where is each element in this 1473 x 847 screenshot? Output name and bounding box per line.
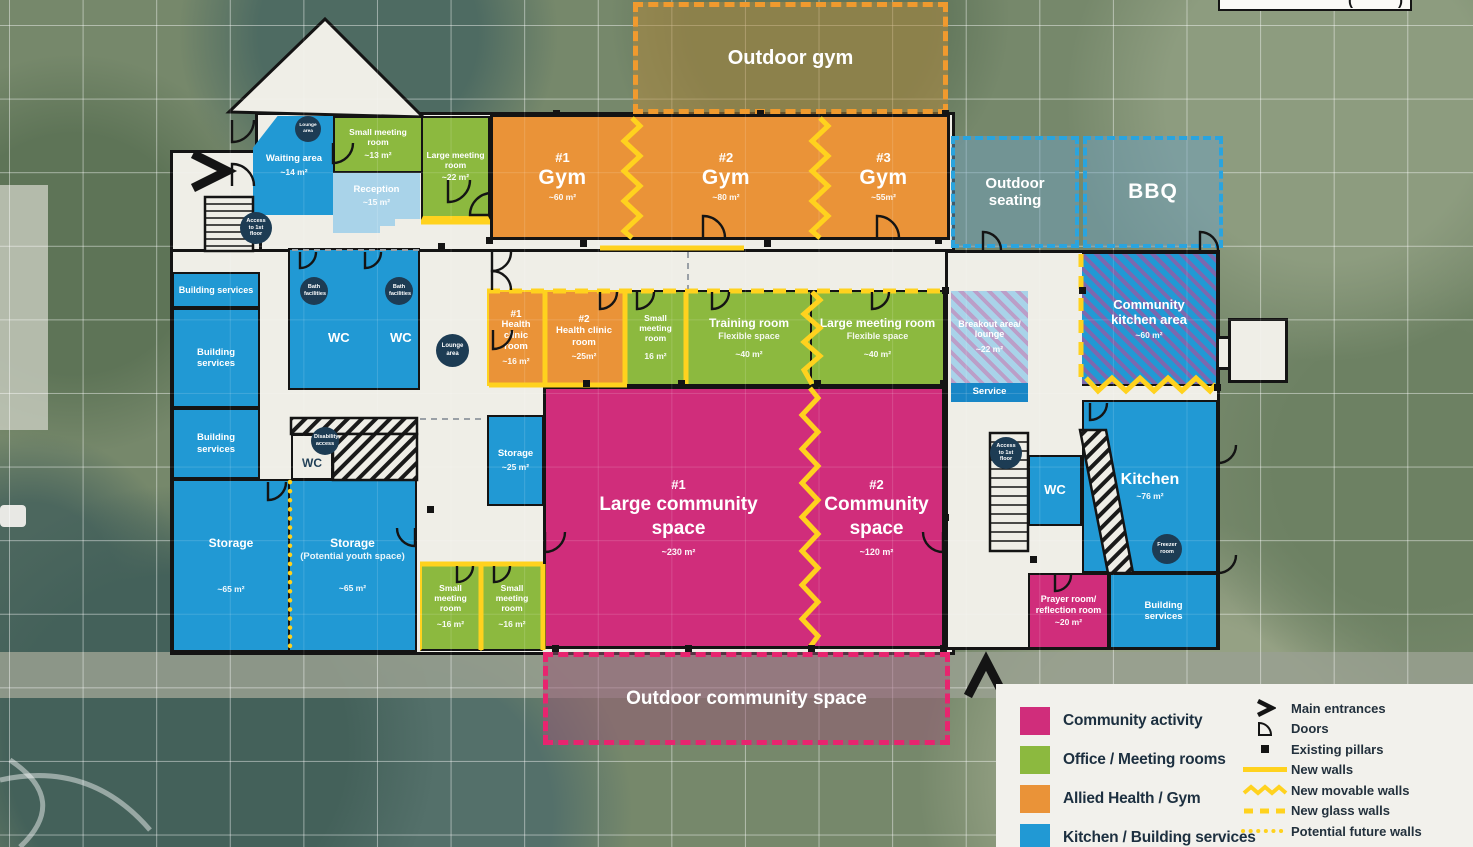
movable-wall-icon: [1239, 783, 1291, 797]
label: Storage: [209, 537, 254, 551]
label: Small meeting room: [343, 128, 413, 148]
label: WC: [1044, 483, 1066, 498]
label: Outdoor gym: [728, 47, 854, 70]
label: Service: [973, 387, 1007, 398]
label: Bath facilities: [304, 284, 324, 298]
room-large-meeting-mid: Large meeting room Flexible space ~40 m²: [812, 290, 945, 386]
area: ~230 m²: [662, 547, 696, 557]
scale-box: ( ): [1218, 0, 1412, 11]
legend-doors: Doors: [1239, 719, 1422, 740]
room-building-services-3: Building services: [172, 408, 260, 479]
room-small-meeting-top: Small meeting room ~13 m²: [333, 116, 423, 173]
badge-disability-access: Disability access: [311, 427, 339, 455]
number: #3: [876, 151, 890, 166]
legend-existing-pillars: Existing pillars: [1239, 739, 1422, 760]
room-wc-right: WC: [1028, 455, 1082, 526]
legend-item-kitchen-services: Kitchen / Building services: [1020, 823, 1256, 847]
room-gym-3: #3 Gym ~55m²: [820, 114, 950, 240]
room-wc-left-2-label: WC: [390, 330, 412, 345]
office-meeting-swatch: [1020, 746, 1050, 774]
area: ~16 m²: [498, 620, 525, 630]
room-large-meeting-top: Large meeting room ~22 m²: [421, 116, 490, 220]
outdoor-gym-zone: Outdoor gym: [633, 2, 948, 114]
gable-roof: [218, 8, 433, 120]
room-wc-block: [288, 248, 420, 390]
label: Small meeting room: [425, 584, 477, 613]
room-reception: Reception ~15 m²: [333, 173, 420, 219]
label: Lounge area: [442, 343, 464, 358]
area: ~20 m²: [1055, 618, 1082, 628]
community-activity-swatch: [1020, 707, 1050, 735]
building-annex-box: [1228, 318, 1288, 383]
label: Health clinic room: [495, 320, 537, 353]
area: ~80 m²: [712, 193, 739, 203]
label: Community kitchen area: [1094, 298, 1204, 328]
area: ~65 m²: [217, 585, 244, 595]
room-service: Service: [951, 383, 1028, 402]
number: #2: [719, 151, 733, 166]
paren-right: ): [1398, 0, 1403, 9]
area: 16 m²: [644, 352, 666, 362]
label: Building services: [179, 285, 254, 295]
label: Breakout area/ lounge: [957, 319, 1023, 340]
area: ~16 m²: [437, 620, 464, 630]
main-entrance-icon: [1239, 699, 1291, 717]
label: BBQ: [1128, 180, 1178, 204]
reception-step-2: [333, 226, 380, 233]
label: Gym: [702, 166, 750, 190]
room-wc-left-1-label: WC: [328, 330, 350, 345]
label: Small meeting room: [486, 584, 538, 613]
legend-main-entrances: Main entrances: [1239, 698, 1422, 719]
reception-step-1: [333, 219, 395, 226]
pillar-icon: [1239, 745, 1291, 753]
label: Access to 1st floor: [994, 443, 1018, 464]
label: Office / Meeting rooms: [1063, 751, 1226, 769]
outdoor-community-zone: Outdoor community space: [543, 652, 950, 745]
allied-health-swatch: [1020, 785, 1050, 813]
note: Flexible space: [847, 331, 909, 341]
room-building-services-2: Building services: [172, 308, 260, 408]
room-storage-25: Storage ~25 m²: [487, 415, 544, 506]
label: Small meeting room: [636, 314, 676, 343]
room-training: Training room Flexible space ~40 m²: [686, 290, 812, 386]
room-community-kitchen: Community kitchen area ~60 m²: [1082, 252, 1218, 386]
floor-plan-page: Waiting area ~14 m² Small meeting room ~…: [0, 0, 1473, 847]
area: ~65 m²: [339, 584, 366, 594]
area: ~25 m²: [502, 463, 529, 473]
label: Outdoor seating: [975, 175, 1055, 209]
label: Prayer room/ reflection room: [1033, 594, 1105, 615]
number: #1: [555, 151, 569, 166]
room-small-meeting-b2: Small meeting room ~16 m²: [481, 563, 543, 651]
area: ~60 m²: [549, 193, 576, 203]
note: (Potential youth space): [300, 552, 405, 563]
area: ~55m²: [871, 193, 896, 203]
label: WC: [302, 457, 322, 471]
label: Bath facilities: [389, 284, 409, 298]
new-wall-icon: [1239, 767, 1291, 772]
label: Lounge area: [299, 123, 317, 135]
legend-new-glass-walls: New glass walls: [1239, 801, 1422, 822]
room-prayer: Prayer room/ reflection room ~20 m²: [1028, 573, 1109, 649]
note: Flexible space: [718, 331, 780, 341]
label: Storage: [330, 537, 375, 551]
door-icon: [1239, 721, 1291, 737]
badge-access-first-floor-left: Access to 1st floor: [240, 212, 272, 244]
room-kitchen: Kitchen ~76 m²: [1082, 400, 1218, 573]
area: ~60 m²: [1135, 331, 1162, 341]
legend-categories: Community activity Office / Meeting room…: [1020, 706, 1256, 847]
area: ~15 m²: [363, 198, 390, 208]
label: Allied Health / Gym: [1063, 790, 1200, 808]
label: Gym: [538, 166, 586, 190]
label: Building services: [1134, 600, 1194, 623]
label: New glass walls: [1291, 803, 1390, 818]
label: Training room: [709, 317, 789, 331]
label: Kitchen / Building services: [1063, 829, 1256, 847]
badge-bath-facilities-1: Bath facilities: [300, 277, 328, 305]
room-health-clinic-1: #1 Health clinic room ~16 m²: [487, 290, 545, 386]
label: New walls: [1291, 762, 1353, 777]
number: #1: [671, 478, 685, 493]
label: Reception: [354, 184, 400, 195]
label: Waiting area: [266, 153, 322, 164]
area: ~16 m²: [502, 357, 529, 367]
room-building-services-right: Building services: [1109, 573, 1218, 649]
label: Doors: [1291, 721, 1329, 736]
badge-lounge-small: Lounge area: [295, 116, 321, 142]
room-small-meeting-mid: Small meeting room 16 m²: [625, 290, 686, 386]
area: ~120 m²: [860, 547, 894, 557]
label: Outdoor community space: [626, 688, 867, 710]
label: Kitchen: [1121, 471, 1180, 489]
outdoor-seating-zone: Outdoor seating: [951, 136, 1079, 248]
badge-lounge-mid: Lounge area: [436, 334, 469, 367]
room-gym-1: #1 Gym ~60 m²: [490, 114, 632, 240]
outdoor-bbq-zone: BBQ: [1083, 136, 1223, 248]
label: Building services: [186, 347, 246, 370]
label: Potential future walls: [1291, 824, 1422, 839]
label: Main entrances: [1291, 701, 1386, 716]
room-large-community-space: #1 Large community space ~230 m²: [543, 386, 811, 649]
future-wall-icon: [1239, 827, 1291, 835]
room-gym-2: #2 Gym ~80 m²: [632, 114, 820, 240]
room-storage-left: Storage ~65 m²: [172, 479, 290, 652]
legend-new-walls: New walls: [1239, 760, 1422, 781]
legend-potential-future-walls: Potential future walls: [1239, 821, 1422, 842]
label: Community activity: [1063, 712, 1202, 730]
label: Access to 1st floor: [244, 218, 268, 239]
label: Storage: [498, 448, 533, 459]
number: #2: [578, 314, 589, 326]
kitchen-services-swatch: [1020, 824, 1050, 847]
room-health-clinic-2: #2 Health clinic room ~25m²: [545, 290, 625, 386]
label: Existing pillars: [1291, 742, 1383, 757]
room-building-services-1: Building services: [172, 272, 260, 308]
area: ~13 m²: [364, 151, 391, 161]
badge-freezer: Freezer room: [1152, 534, 1182, 564]
area: ~22 m²: [976, 345, 1003, 355]
room-small-meeting-b1: Small meeting room ~16 m²: [420, 563, 481, 651]
legend-new-movable-walls: New movable walls: [1239, 780, 1422, 801]
area: ~40 m²: [864, 350, 891, 360]
label: Disability access: [314, 434, 336, 448]
area: ~22 m²: [442, 173, 469, 183]
badge-bath-facilities-2: Bath facilities: [385, 277, 413, 305]
legend-item-office-meeting: Office / Meeting rooms: [1020, 745, 1256, 774]
glass-wall-icon: [1239, 807, 1291, 815]
number: #2: [869, 478, 883, 493]
area: ~14 m²: [280, 168, 307, 178]
area: ~25m²: [572, 352, 597, 362]
badge-access-first-floor-right: Access to 1st floor: [990, 437, 1022, 469]
label: Large community space: [584, 493, 774, 541]
label: Building services: [186, 432, 246, 455]
label: Freezer room: [1156, 542, 1178, 556]
legend-item-allied-health: Allied Health / Gym: [1020, 784, 1256, 813]
room-breakout: Breakout area/ lounge ~22 m²: [951, 291, 1028, 383]
area: ~76 m²: [1136, 492, 1163, 502]
label: Health clinic room: [552, 325, 616, 348]
label: New movable walls: [1291, 783, 1410, 798]
legend-panel: Community activity Office / Meeting room…: [996, 684, 1473, 847]
label: Gym: [859, 166, 907, 190]
label: Large meeting room: [820, 317, 935, 331]
legend-symbols: Main entrances Doors Existing pillars Ne…: [1239, 698, 1422, 842]
label: Community space: [822, 493, 932, 541]
label: Large meeting room: [426, 151, 486, 171]
room-community-space: #2 Community space ~120 m²: [811, 386, 945, 649]
legend-item-community-activity: Community activity: [1020, 706, 1256, 735]
area: ~40 m²: [735, 350, 762, 360]
paren-left: (: [1348, 0, 1353, 9]
room-storage-youth: Storage (Potential youth space) ~65 m²: [290, 479, 417, 652]
